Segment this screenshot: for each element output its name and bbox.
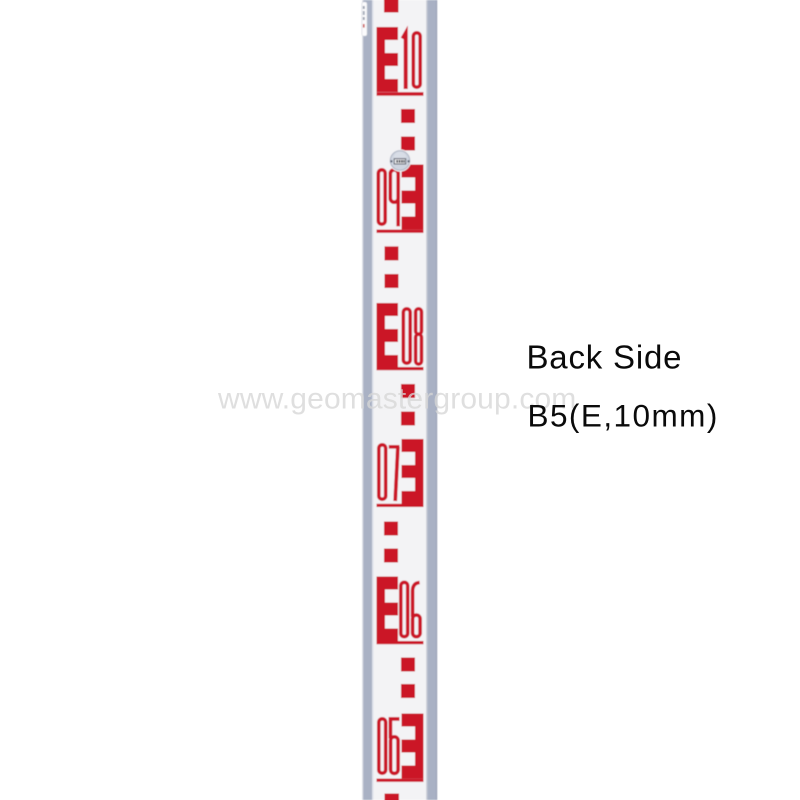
svg-text:B5(E,10mm): B5(E,10mm) [528,398,719,434]
svg-text:www.geomastergroup.com: www.geomastergroup.com [217,382,576,415]
svg-text:Back Side: Back Side [527,339,683,376]
